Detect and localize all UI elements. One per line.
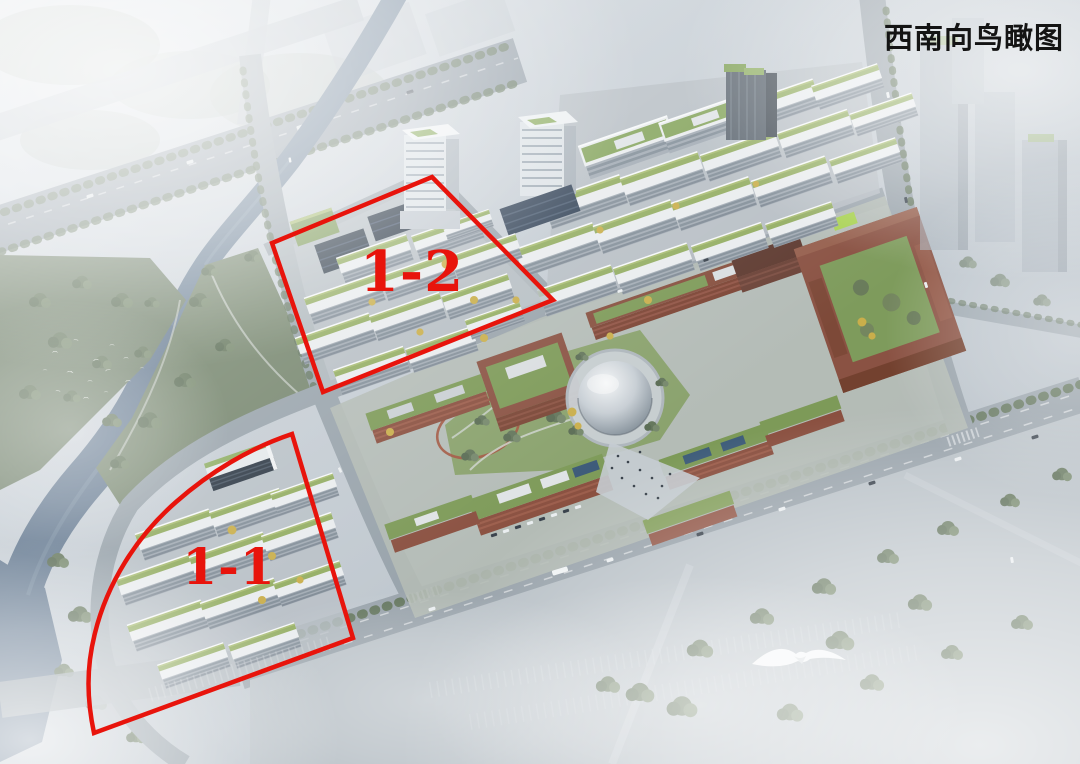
zone-1-2-label: 1-2 — [360, 244, 464, 300]
zone-1-1-label: 1-1 — [182, 542, 275, 592]
view-title: 西南向鸟瞰图 — [884, 15, 1064, 57]
fog-overlays — [0, 0, 1080, 764]
aerial-render-page: 西南向鸟瞰图 1-2 1-1 — [0, 0, 1080, 764]
aerial-scene — [0, 0, 1080, 764]
